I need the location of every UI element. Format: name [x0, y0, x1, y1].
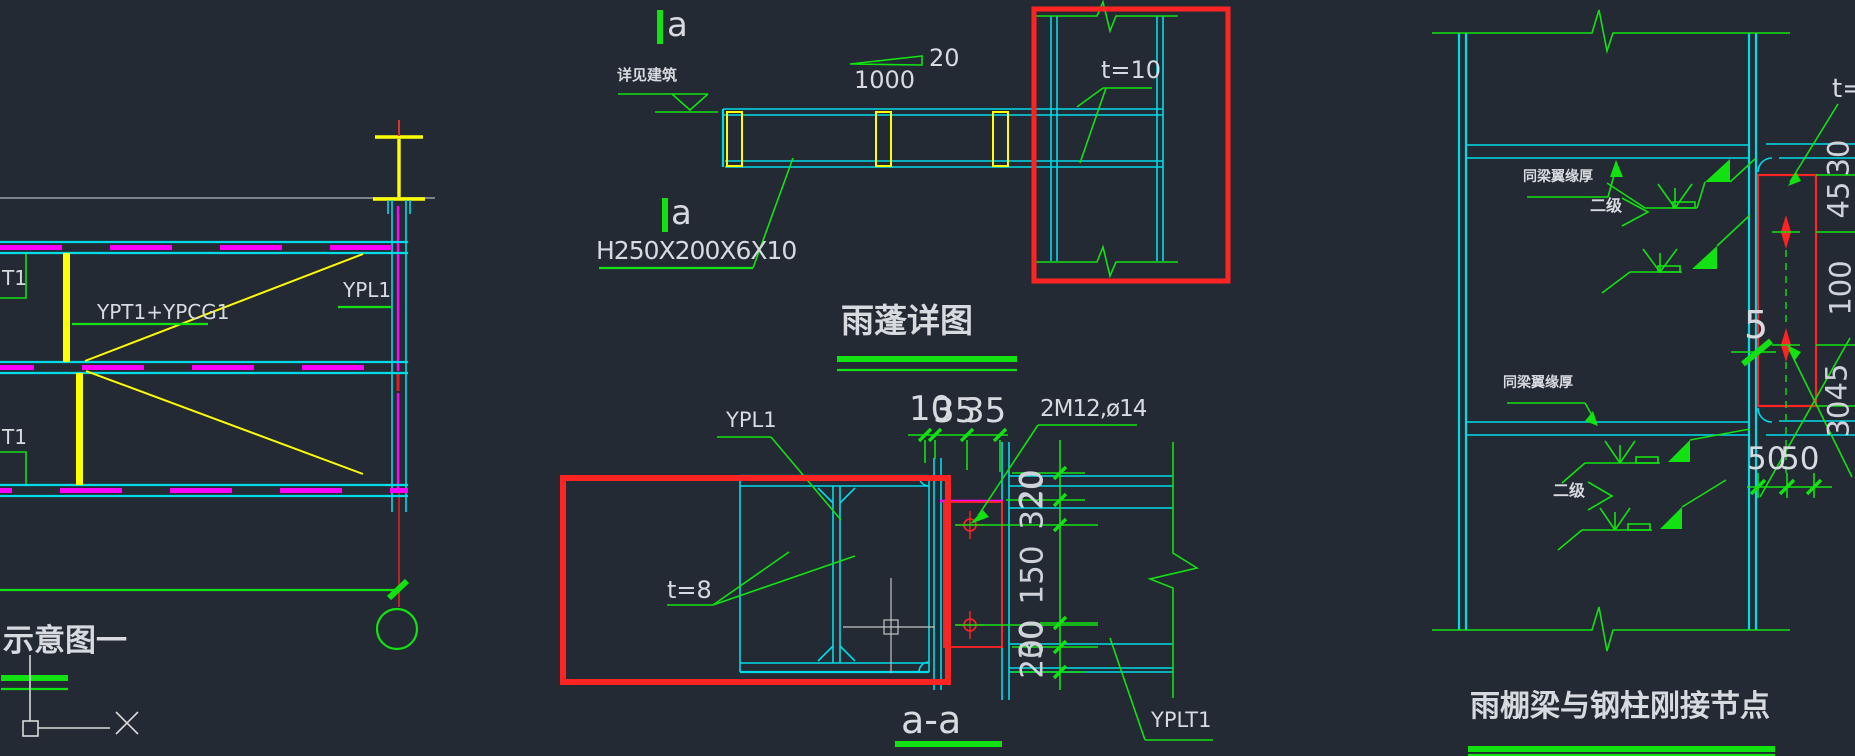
node-dim-50b: 50 — [1780, 444, 1819, 475]
weld-symbol — [1562, 429, 1750, 483]
dim-150: 150 — [1018, 545, 1049, 604]
node-dim-45b: 45 — [1823, 364, 1852, 401]
weld-symbol — [1607, 159, 1755, 208]
node-title: 雨棚梁与钢柱刚接节点 — [1470, 692, 1770, 722]
bolt-symbol — [1772, 215, 1800, 249]
node-dim-100: 100 — [1827, 260, 1855, 315]
flange-note-top: 同梁翼缘厚 — [1523, 170, 1593, 184]
weld-symbol — [1602, 215, 1750, 293]
drawing-canvas[interactable]: T1 T1 YPT1+YPCG1 YPL1 示意图一 a a 详见建筑 20 1… — [0, 0, 1855, 756]
node-detail — [1432, 10, 1855, 755]
highlight-box-column — [1034, 9, 1228, 281]
plan-view — [0, 120, 435, 689]
dim-35b: 35 — [963, 394, 1006, 428]
member-label-bottom: T1 — [2, 427, 27, 447]
weld-size: 5 — [1744, 306, 1768, 344]
dim-30-overlap: 30 — [1017, 620, 1048, 659]
length-dim: 1000 — [854, 68, 915, 92]
section-title: a-a — [901, 701, 961, 739]
node-dim-45a: 45 — [1825, 182, 1854, 219]
crosshair-cursor — [843, 578, 935, 673]
cad-geometry — [0, 0, 1855, 756]
thickness-partial: t= — [1832, 76, 1855, 102]
node-dim-30b: 30 — [1825, 401, 1854, 438]
beam-spec: H250X200X6X10 — [596, 238, 796, 263]
dim-20-overlap: 20 — [1017, 469, 1048, 508]
edge-plate-label: YPLT1 — [1151, 710, 1212, 731]
ucs-icon — [23, 655, 138, 736]
section-mark-top: a — [667, 8, 688, 42]
weld-grade-top: 二级 — [1590, 198, 1622, 214]
bolt-note: 2M12,ø14 — [1040, 398, 1146, 421]
datum-note: 详见建筑 — [617, 68, 677, 83]
plate-label-plan: YPL1 — [343, 280, 391, 300]
plate-label-section: YPL1 — [726, 410, 777, 431]
plate-thickness-note: t=10 — [1101, 58, 1161, 82]
flange-note-bottom: 同梁翼缘厚 — [1503, 376, 1573, 390]
weld-grade-bottom: 二级 — [1553, 483, 1585, 499]
web-thickness-note: t=8 — [667, 578, 712, 602]
highlight-box-plate — [563, 478, 948, 682]
node-dim-30a: 30 — [1825, 140, 1854, 177]
elevation-title: 雨蓬详图 — [841, 304, 973, 337]
member-label-top: T1 — [2, 268, 27, 288]
slope-value: 20 — [929, 46, 960, 70]
section-aa — [667, 425, 1213, 744]
plan-caption: 示意图一 — [3, 626, 127, 657]
girder-label: YPT1+YPCG1 — [97, 302, 229, 322]
section-mark-bottom: a — [671, 196, 692, 230]
